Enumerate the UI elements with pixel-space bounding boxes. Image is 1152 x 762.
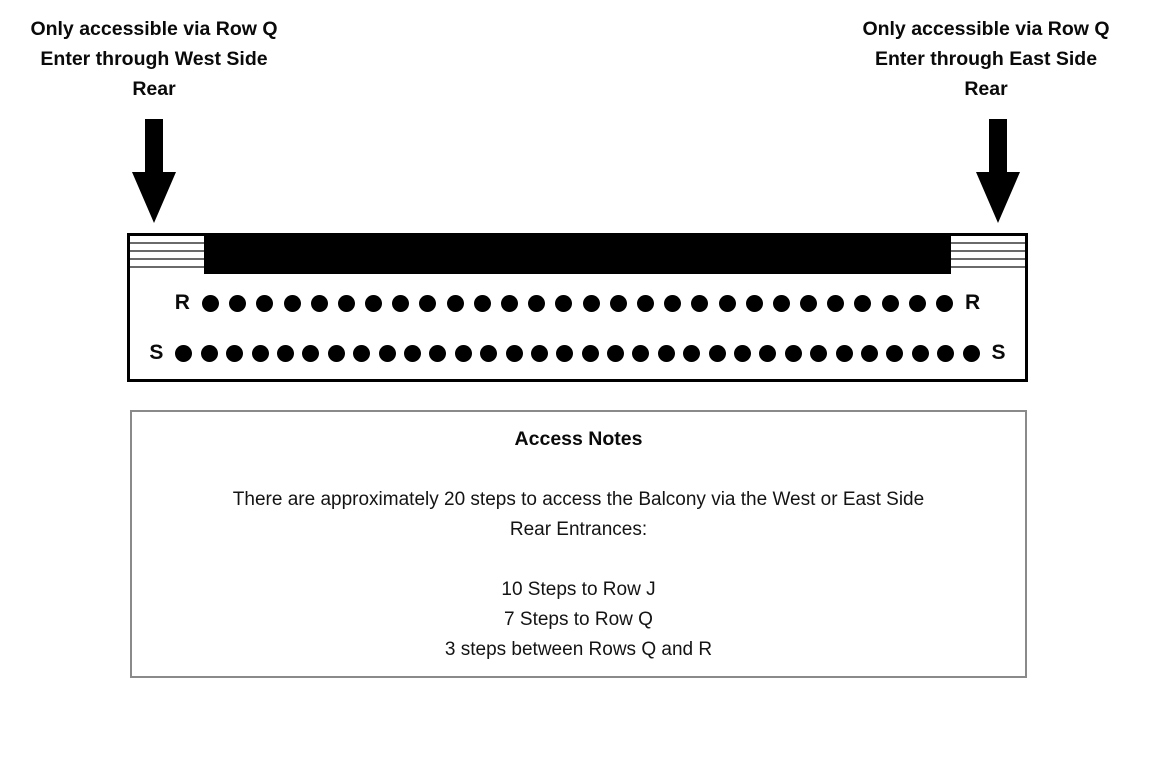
access-notes-title: Access Notes (132, 425, 1025, 453)
access-notes-step: 3 steps between Rows Q and R (132, 635, 1025, 665)
annotation-line: Rear (840, 74, 1132, 104)
west-stairs-icon (130, 236, 204, 274)
seat-row-R: RR (130, 292, 1025, 314)
seat-dot (392, 295, 409, 312)
seat-dot (480, 345, 497, 362)
seat-dot (365, 295, 382, 312)
seat-row-S: SS (130, 342, 1025, 364)
seat-dot (256, 295, 273, 312)
access-notes-steps: 10 Steps to Row J 7 Steps to Row Q 3 ste… (132, 575, 1025, 665)
annotation-line: Only accessible via Row Q (8, 14, 300, 44)
seat-dot (836, 345, 853, 362)
row-label-r-left: R (175, 292, 190, 314)
access-notes-intro: There are approximately 20 steps to acce… (132, 485, 1025, 545)
seat-dot (404, 345, 421, 362)
seat-dot (664, 295, 681, 312)
seat-dot (284, 295, 301, 312)
access-notes-step: 10 Steps to Row J (132, 575, 1025, 605)
seat-dot (658, 345, 675, 362)
row-label-s-left: S (149, 342, 163, 364)
seat-dot (455, 345, 472, 362)
seat-dot (691, 295, 708, 312)
access-notes-intro-line: Rear Entrances: (132, 515, 1025, 545)
east-entrance-annotation: Only accessible via Row Q Enter through … (840, 14, 1132, 104)
seat-dot (531, 345, 548, 362)
seat-dots (175, 345, 979, 362)
balcony-rear-wall (130, 236, 1025, 274)
seat-dot (353, 345, 370, 362)
seat-dots (202, 295, 953, 312)
annotation-line: Rear (8, 74, 300, 104)
access-notes-step: 7 Steps to Row Q (132, 605, 1025, 635)
seat-dot (419, 295, 436, 312)
seat-dot (610, 295, 627, 312)
seat-dot (226, 345, 243, 362)
down-arrow-west-icon (132, 119, 176, 223)
seat-dot (773, 295, 790, 312)
east-stairs-icon (951, 236, 1025, 274)
seat-dot (328, 345, 345, 362)
seat-dot (506, 345, 523, 362)
access-notes-panel: Access Notes There are approximately 20 … (130, 410, 1027, 678)
seat-dot (632, 345, 649, 362)
seat-dot (827, 295, 844, 312)
seat-dot (229, 295, 246, 312)
annotation-line: Enter through West Side (8, 44, 300, 74)
annotation-line: Enter through East Side (840, 44, 1132, 74)
seat-dot (555, 295, 572, 312)
seat-dot (637, 295, 654, 312)
seat-dot (202, 295, 219, 312)
seat-dot (252, 345, 269, 362)
seat-dot (583, 295, 600, 312)
seat-dot (501, 295, 518, 312)
seat-dot (447, 295, 464, 312)
row-label-s-right: S (992, 342, 1006, 364)
seat-dot (302, 345, 319, 362)
seat-dot (746, 295, 763, 312)
balcony-seating-diagram: Only accessible via Row Q Enter through … (0, 0, 1152, 762)
seat-dot (607, 345, 624, 362)
seat-dot (810, 345, 827, 362)
seat-dot (379, 345, 396, 362)
seat-dot (937, 345, 954, 362)
seat-dot (719, 295, 736, 312)
annotation-line: Only accessible via Row Q (840, 14, 1132, 44)
seat-dot (963, 345, 980, 362)
seat-dot (886, 345, 903, 362)
seat-dot (854, 295, 871, 312)
seat-dot (429, 345, 446, 362)
seat-dot (709, 345, 726, 362)
seat-dot (734, 345, 751, 362)
access-notes-intro-line: There are approximately 20 steps to acce… (132, 485, 1025, 515)
seat-dot (556, 345, 573, 362)
west-entrance-annotation: Only accessible via Row Q Enter through … (8, 14, 300, 104)
seat-dot (582, 345, 599, 362)
down-arrow-east-icon (976, 119, 1020, 223)
seat-dot (683, 345, 700, 362)
seat-dot (912, 345, 929, 362)
seat-dot (785, 345, 802, 362)
seat-dot (861, 345, 878, 362)
seat-dot (528, 295, 545, 312)
row-label-r-right: R (965, 292, 980, 314)
seat-dot (909, 295, 926, 312)
seat-dot (474, 295, 491, 312)
seat-dot (175, 345, 192, 362)
seat-dot (338, 295, 355, 312)
seat-dot (882, 295, 899, 312)
seat-dot (759, 345, 776, 362)
seat-dot (277, 345, 294, 362)
balcony-section-box: RR SS (127, 233, 1028, 382)
seat-dot (936, 295, 953, 312)
seat-dot (201, 345, 218, 362)
seat-dot (800, 295, 817, 312)
seat-dot (311, 295, 328, 312)
